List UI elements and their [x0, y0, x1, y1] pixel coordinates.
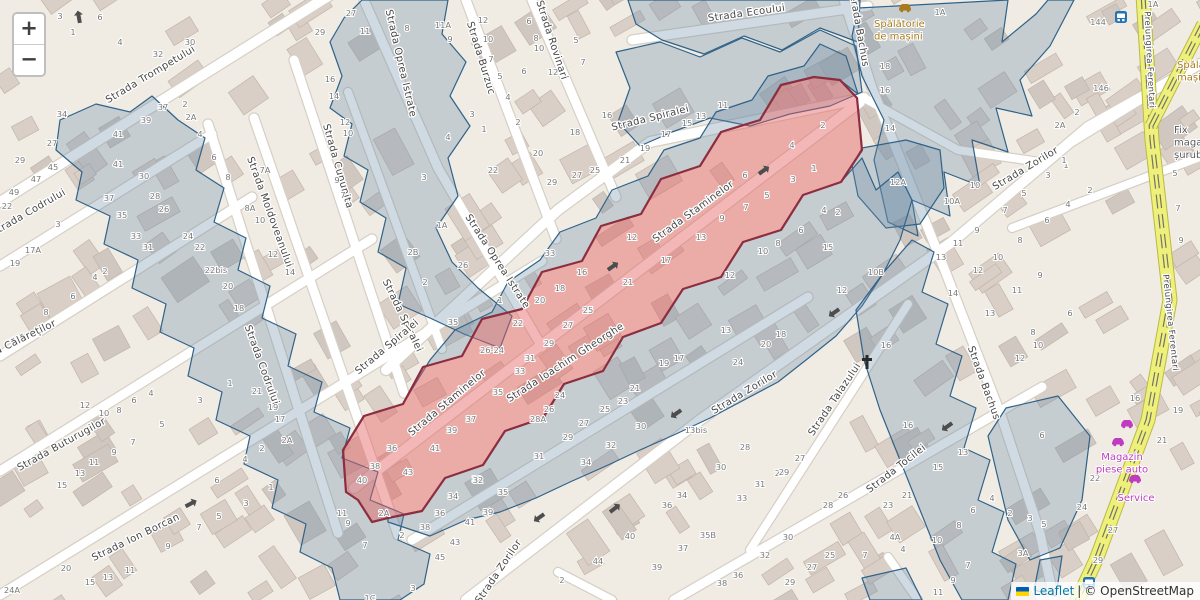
bus-icon: [1115, 11, 1127, 23]
house-number: 23: [883, 500, 894, 510]
house-number: 2: [102, 266, 107, 276]
house-number: 8: [43, 307, 48, 317]
house-number: 10: [255, 215, 266, 225]
house-number: 144: [1090, 17, 1106, 27]
house-number: 11: [718, 100, 729, 110]
house-number: 6: [70, 291, 75, 301]
house-number: 32: [760, 550, 771, 560]
house-number: 4A: [890, 532, 901, 542]
house-number: 10: [932, 535, 943, 545]
house-number: 7: [1175, 203, 1180, 213]
house-number: 10: [483, 34, 494, 44]
house-number: 29: [779, 467, 790, 477]
house-number: 37: [104, 193, 115, 203]
house-number: 11: [125, 565, 136, 575]
house-number: 45: [48, 162, 59, 172]
house-number: 26: [458, 260, 469, 270]
house-number: 2: [515, 117, 520, 127]
house-number: 11: [89, 457, 100, 467]
house-number: 7: [743, 202, 748, 212]
house-number: 16: [577, 267, 588, 277]
house-number: 5: [159, 419, 164, 429]
house-number: 6: [526, 16, 531, 26]
house-number: 28: [150, 191, 161, 201]
house-number: 22: [2, 201, 13, 211]
house-number: 9: [345, 518, 350, 528]
house-number: 38: [420, 522, 431, 532]
house-number: 17: [275, 414, 286, 424]
house-number: 30: [716, 462, 727, 472]
house-number: 37: [158, 102, 169, 112]
house-number: 1C: [364, 593, 375, 600]
house-number: 44: [593, 556, 604, 566]
house-number: 17: [674, 353, 685, 363]
house-number: 2: [422, 277, 427, 287]
house-number: 17: [661, 255, 672, 265]
house-number: 9: [111, 447, 116, 457]
house-number: 41: [113, 159, 124, 169]
house-number: 7: [1002, 205, 1007, 215]
leaflet-link[interactable]: Leaflet: [1033, 584, 1074, 598]
house-number: 8: [225, 172, 230, 182]
house-number: 13: [985, 308, 996, 318]
house-number: 12: [973, 265, 984, 275]
house-number: 3: [57, 11, 62, 21]
house-number: 7: [130, 437, 135, 447]
house-number: 12: [548, 67, 559, 77]
house-number: 41: [465, 517, 476, 527]
house-number: 5: [216, 511, 221, 521]
house-number: 9: [165, 541, 170, 551]
house-number: 26: [544, 404, 555, 414]
house-number: 12: [627, 232, 638, 242]
house-number: 37: [466, 414, 477, 424]
house-number: 36: [435, 508, 446, 518]
house-number: 31: [534, 451, 545, 461]
house-number: 34: [57, 109, 68, 119]
house-number: 30: [636, 421, 647, 431]
poi-label: Magazin: [1101, 452, 1143, 463]
house-number: 8: [1017, 235, 1022, 245]
house-number: 24: [555, 390, 566, 400]
house-number: 27: [807, 562, 818, 572]
poi-label: șuruburi: [1174, 150, 1200, 161]
house-number: 12A: [890, 177, 907, 187]
house-number: 13: [958, 447, 969, 457]
house-number: 2: [1007, 508, 1012, 518]
house-number: 11: [953, 238, 964, 248]
house-number: 30: [783, 532, 794, 542]
house-number: 18: [570, 127, 581, 137]
house-number: 4: [1065, 199, 1070, 209]
house-number: 4: [148, 388, 153, 398]
house-number: 13: [721, 325, 732, 335]
house-number: 2B: [408, 247, 419, 257]
house-number: 6: [97, 12, 102, 22]
house-number: 16: [1130, 393, 1141, 403]
house-number: 14: [948, 288, 959, 298]
house-number: 13bis: [685, 425, 707, 435]
house-number: 26-24: [480, 345, 504, 355]
house-number: 10: [970, 180, 981, 190]
house-number: 29: [547, 177, 558, 187]
house-number: 1: [227, 378, 232, 388]
house-number: 6: [742, 170, 747, 180]
house-number: 28A: [530, 414, 547, 424]
house-number: 5: [1021, 188, 1026, 198]
house-number: 14: [329, 91, 340, 101]
house-number: 21: [902, 490, 913, 500]
house-number: 9: [334, 175, 339, 185]
attribution-bar: Leaflet|© OpenStreetMap: [1011, 582, 1200, 600]
house-number: 1: [497, 295, 502, 305]
house-number: 10: [343, 128, 354, 138]
house-number: 22: [513, 318, 524, 328]
house-number: 16: [325, 74, 336, 84]
house-number: 31: [143, 242, 154, 252]
house-number: 6: [1039, 430, 1044, 440]
house-number: 26: [159, 204, 170, 214]
house-number: 15: [85, 577, 96, 587]
house-number: 32: [153, 49, 164, 59]
house-number: 12: [725, 270, 736, 280]
house-number: 8: [775, 238, 780, 248]
house-number: 7: [862, 550, 867, 560]
house-number: 4: [505, 92, 510, 102]
poi-label: Spălătorie: [1177, 60, 1200, 71]
house-number: 6: [970, 505, 975, 515]
house-number: 47: [31, 174, 42, 184]
poi-label: Fix: [1174, 125, 1188, 136]
house-number: 10: [534, 43, 545, 53]
house-number: 21: [623, 277, 634, 287]
house-number: 12: [478, 15, 489, 25]
house-number: 19: [1173, 405, 1184, 415]
house-number: 3A: [1018, 548, 1029, 558]
house-number: 6: [214, 475, 219, 485]
house-number: 9: [719, 213, 724, 223]
attribution-separator: |: [1077, 584, 1081, 598]
house-number: 5: [1041, 519, 1046, 529]
house-number: 29: [544, 338, 555, 348]
house-number: 3: [410, 583, 415, 593]
house-number: 3: [1045, 170, 1050, 180]
house-number: 33: [131, 231, 142, 241]
house-number: 3: [421, 172, 426, 182]
house-number: 2: [820, 120, 825, 130]
house-number: 10: [758, 246, 769, 256]
house-number: 10B: [868, 267, 885, 277]
house-number: 39: [483, 507, 494, 517]
house-number: 19: [268, 402, 279, 412]
house-number: 6: [798, 225, 803, 235]
house-number: 24: [733, 357, 744, 367]
house-number: 30: [139, 171, 150, 181]
house-number: 5: [573, 35, 578, 45]
house-number: 15: [57, 480, 68, 490]
house-number: 13: [103, 572, 114, 582]
house-number: 1: [70, 27, 75, 37]
house-number: 38: [717, 578, 728, 588]
house-number: 43: [403, 467, 414, 477]
house-number: 29: [15, 155, 26, 165]
house-number: 2: [1087, 185, 1092, 195]
house-number: 8A: [245, 203, 256, 213]
house-number: 12: [268, 249, 279, 259]
house-number: 22: [195, 242, 206, 252]
poi-label: de mașini: [874, 32, 923, 43]
house-number: 28: [740, 442, 751, 452]
house-number: 9: [974, 225, 979, 235]
house-number: 16: [881, 340, 892, 350]
house-number: 4: [445, 132, 450, 142]
ukraine-flag-icon: [1016, 587, 1029, 596]
house-number: 49: [9, 187, 20, 197]
house-number: 7: [580, 57, 585, 67]
house-number: 8: [404, 23, 409, 33]
house-number: 4: [117, 37, 122, 47]
house-number: 10A: [944, 196, 961, 206]
house-number: 17A: [25, 245, 42, 255]
house-number: 19: [640, 143, 651, 153]
house-number: 10: [993, 252, 1004, 262]
house-number: 27: [47, 138, 58, 148]
house-number: 24A: [4, 585, 21, 595]
house-number: 29: [563, 432, 574, 442]
house-number: 28: [823, 500, 834, 510]
house-number: 2: [399, 530, 404, 540]
house-number: 35: [448, 317, 459, 327]
house-number: 146: [1093, 83, 1109, 93]
house-number: 16: [880, 85, 891, 95]
house-number: 30: [185, 37, 196, 47]
house-number: 20: [535, 295, 546, 305]
house-number: 41: [430, 443, 441, 453]
house-number: 3: [790, 174, 795, 184]
house-number: 29: [315, 27, 326, 37]
house-number: 27: [1108, 525, 1119, 535]
house-number: 27: [346, 8, 357, 18]
house-number: 2: [182, 99, 187, 109]
house-number: 13: [936, 252, 947, 262]
poi-label: magazin: [1174, 138, 1200, 149]
house-number: 7: [340, 190, 345, 200]
house-number: 20: [223, 281, 234, 291]
house-number: 39: [447, 425, 458, 435]
map-canvas[interactable]: Strada TrompetuluiStrada EcouluiStrada S…: [0, 0, 1200, 600]
house-number: 12: [837, 285, 848, 295]
house-number: 13: [696, 111, 707, 121]
zoom-out-button[interactable]: −: [14, 45, 44, 75]
house-number: 34: [581, 457, 592, 467]
house-number: 4: [821, 205, 826, 215]
house-number: 7: [362, 540, 367, 550]
house-number: 24: [183, 231, 194, 241]
house-number: 33: [737, 493, 748, 503]
house-number: 8: [1030, 327, 1035, 337]
house-number: 8: [533, 33, 538, 43]
house-number: 4: [789, 140, 794, 150]
house-number: 31: [755, 479, 766, 489]
house-number: 25: [583, 305, 594, 315]
house-number: 5: [764, 190, 769, 200]
poi-label: Spălătorie: [874, 19, 925, 30]
house-number: 35: [493, 387, 504, 397]
house-number: 1: [481, 124, 486, 134]
house-number: 20: [533, 148, 544, 158]
house-number: 33: [515, 366, 526, 376]
house-number: 13: [75, 468, 86, 478]
house-number: 1: [268, 482, 273, 492]
house-number: 21: [630, 383, 641, 393]
house-number: 25: [590, 165, 601, 175]
house-number: 36: [662, 500, 673, 510]
house-number: 41: [113, 129, 124, 139]
house-number: 19: [659, 358, 670, 368]
house-number: 34: [677, 490, 688, 500]
house-number: 7: [488, 54, 493, 64]
house-number: 32: [606, 440, 617, 450]
house-number: 32: [473, 475, 484, 485]
house-number: 2A: [282, 435, 293, 445]
house-number: 5: [1172, 168, 1177, 178]
map-viewport[interactable]: Strada TrompetuluiStrada EcouluiStrada S…: [0, 0, 1200, 600]
house-number: 4: [197, 129, 202, 139]
house-number: 21: [620, 155, 631, 165]
house-number: 11: [933, 587, 944, 597]
house-number: 31: [525, 353, 536, 363]
house-number: 7: [196, 522, 201, 532]
house-number: 37: [678, 543, 689, 553]
house-number: 18: [555, 283, 566, 293]
house-number: 20: [61, 563, 72, 573]
house-number: 1A: [437, 220, 448, 230]
house-number: 43: [450, 537, 461, 547]
house-number: 3: [1027, 513, 1032, 523]
house-number: 34: [448, 491, 459, 501]
house-number: 35: [117, 210, 128, 220]
house-number: 27: [795, 453, 806, 463]
house-number: 11: [1012, 285, 1023, 295]
house-number: 3: [469, 109, 474, 119]
house-number: 38: [370, 461, 381, 471]
house-number: 6: [211, 152, 216, 162]
house-number: 10: [1033, 340, 1044, 350]
house-number: 2: [1074, 107, 1079, 117]
house-number: 11: [360, 26, 371, 36]
house-number: 6: [1044, 215, 1049, 225]
house-number: 33: [545, 248, 556, 258]
house-number: 1: [811, 163, 816, 173]
house-number: 10: [99, 408, 110, 418]
house-number: 25: [825, 550, 836, 560]
house-number: 17: [661, 129, 672, 139]
house-number: 18: [234, 303, 245, 313]
house-number: 12: [340, 117, 351, 127]
house-number: 2A: [1055, 120, 1066, 130]
zoom-control: + −: [12, 12, 46, 77]
house-number: 21: [1157, 435, 1168, 445]
house-number: 13: [696, 232, 707, 242]
house-number: 21: [252, 386, 263, 396]
house-number: 29: [1093, 555, 1104, 565]
house-number: 14: [885, 123, 896, 133]
house-number: 29: [785, 577, 796, 587]
house-number: 15: [933, 462, 944, 472]
house-number: 1: [1061, 155, 1066, 165]
house-number: 23: [618, 396, 629, 406]
house-number: 6: [131, 395, 136, 405]
house-number: 11A: [435, 20, 452, 30]
house-number: 20: [761, 339, 772, 349]
house-number: 4: [92, 272, 97, 282]
house-number: 11: [337, 508, 348, 518]
house-number: 39: [652, 562, 663, 572]
house-number: 2A: [186, 112, 197, 122]
house-number: 8: [956, 520, 961, 530]
house-number: 9: [950, 575, 955, 585]
house-number: 4: [989, 493, 994, 503]
house-number: 4: [242, 454, 247, 464]
house-number: 45: [435, 552, 446, 562]
poi-label: piese auto: [1096, 465, 1148, 476]
house-number: 22bis: [205, 265, 227, 275]
poi-label: Service: [1118, 493, 1155, 504]
house-number: 12: [80, 400, 91, 410]
house-number: 2: [835, 207, 840, 217]
house-number: 12: [1015, 353, 1026, 363]
house-number: 40: [357, 475, 368, 485]
house-number: 2: [259, 443, 264, 453]
house-number: 19: [10, 258, 21, 268]
house-number: 2A: [379, 508, 390, 518]
poi-label: mașini: [1177, 73, 1200, 84]
house-number: 7: [965, 560, 970, 570]
house-number: 18: [880, 61, 891, 71]
house-number: 18: [776, 329, 787, 339]
house-number: 2: [559, 575, 564, 585]
house-number: 1A: [1148, 0, 1159, 9]
house-number: 25: [600, 404, 611, 414]
house-number: 9: [447, 34, 452, 44]
house-number: 27: [563, 320, 574, 330]
house-number: 16: [903, 420, 914, 430]
house-number: 5: [497, 71, 502, 81]
house-number: 8: [116, 405, 121, 415]
house-number: 26: [838, 490, 849, 500]
house-number: 3: [197, 395, 202, 405]
house-number: 15: [682, 118, 693, 128]
house-number: 7A: [260, 165, 271, 175]
house-number: 1A: [935, 7, 946, 17]
house-number: 35B: [700, 530, 717, 540]
zoom-in-button[interactable]: +: [14, 14, 44, 45]
house-number: 15: [823, 242, 834, 252]
house-number: 4: [900, 544, 905, 554]
house-number: 9: [1178, 235, 1183, 245]
house-number: 27: [572, 170, 583, 180]
house-number: 24: [1077, 502, 1088, 512]
house-number: 27: [579, 418, 590, 428]
house-number: 14: [285, 267, 296, 277]
osm-link[interactable]: © OpenStreetMap: [1084, 584, 1194, 598]
house-number: 36: [733, 570, 744, 580]
house-number: 40: [625, 531, 636, 541]
house-number: 9: [1037, 270, 1042, 280]
house-number: 16: [602, 110, 613, 120]
house-number: 36: [387, 443, 398, 453]
house-number: 35: [498, 487, 509, 497]
